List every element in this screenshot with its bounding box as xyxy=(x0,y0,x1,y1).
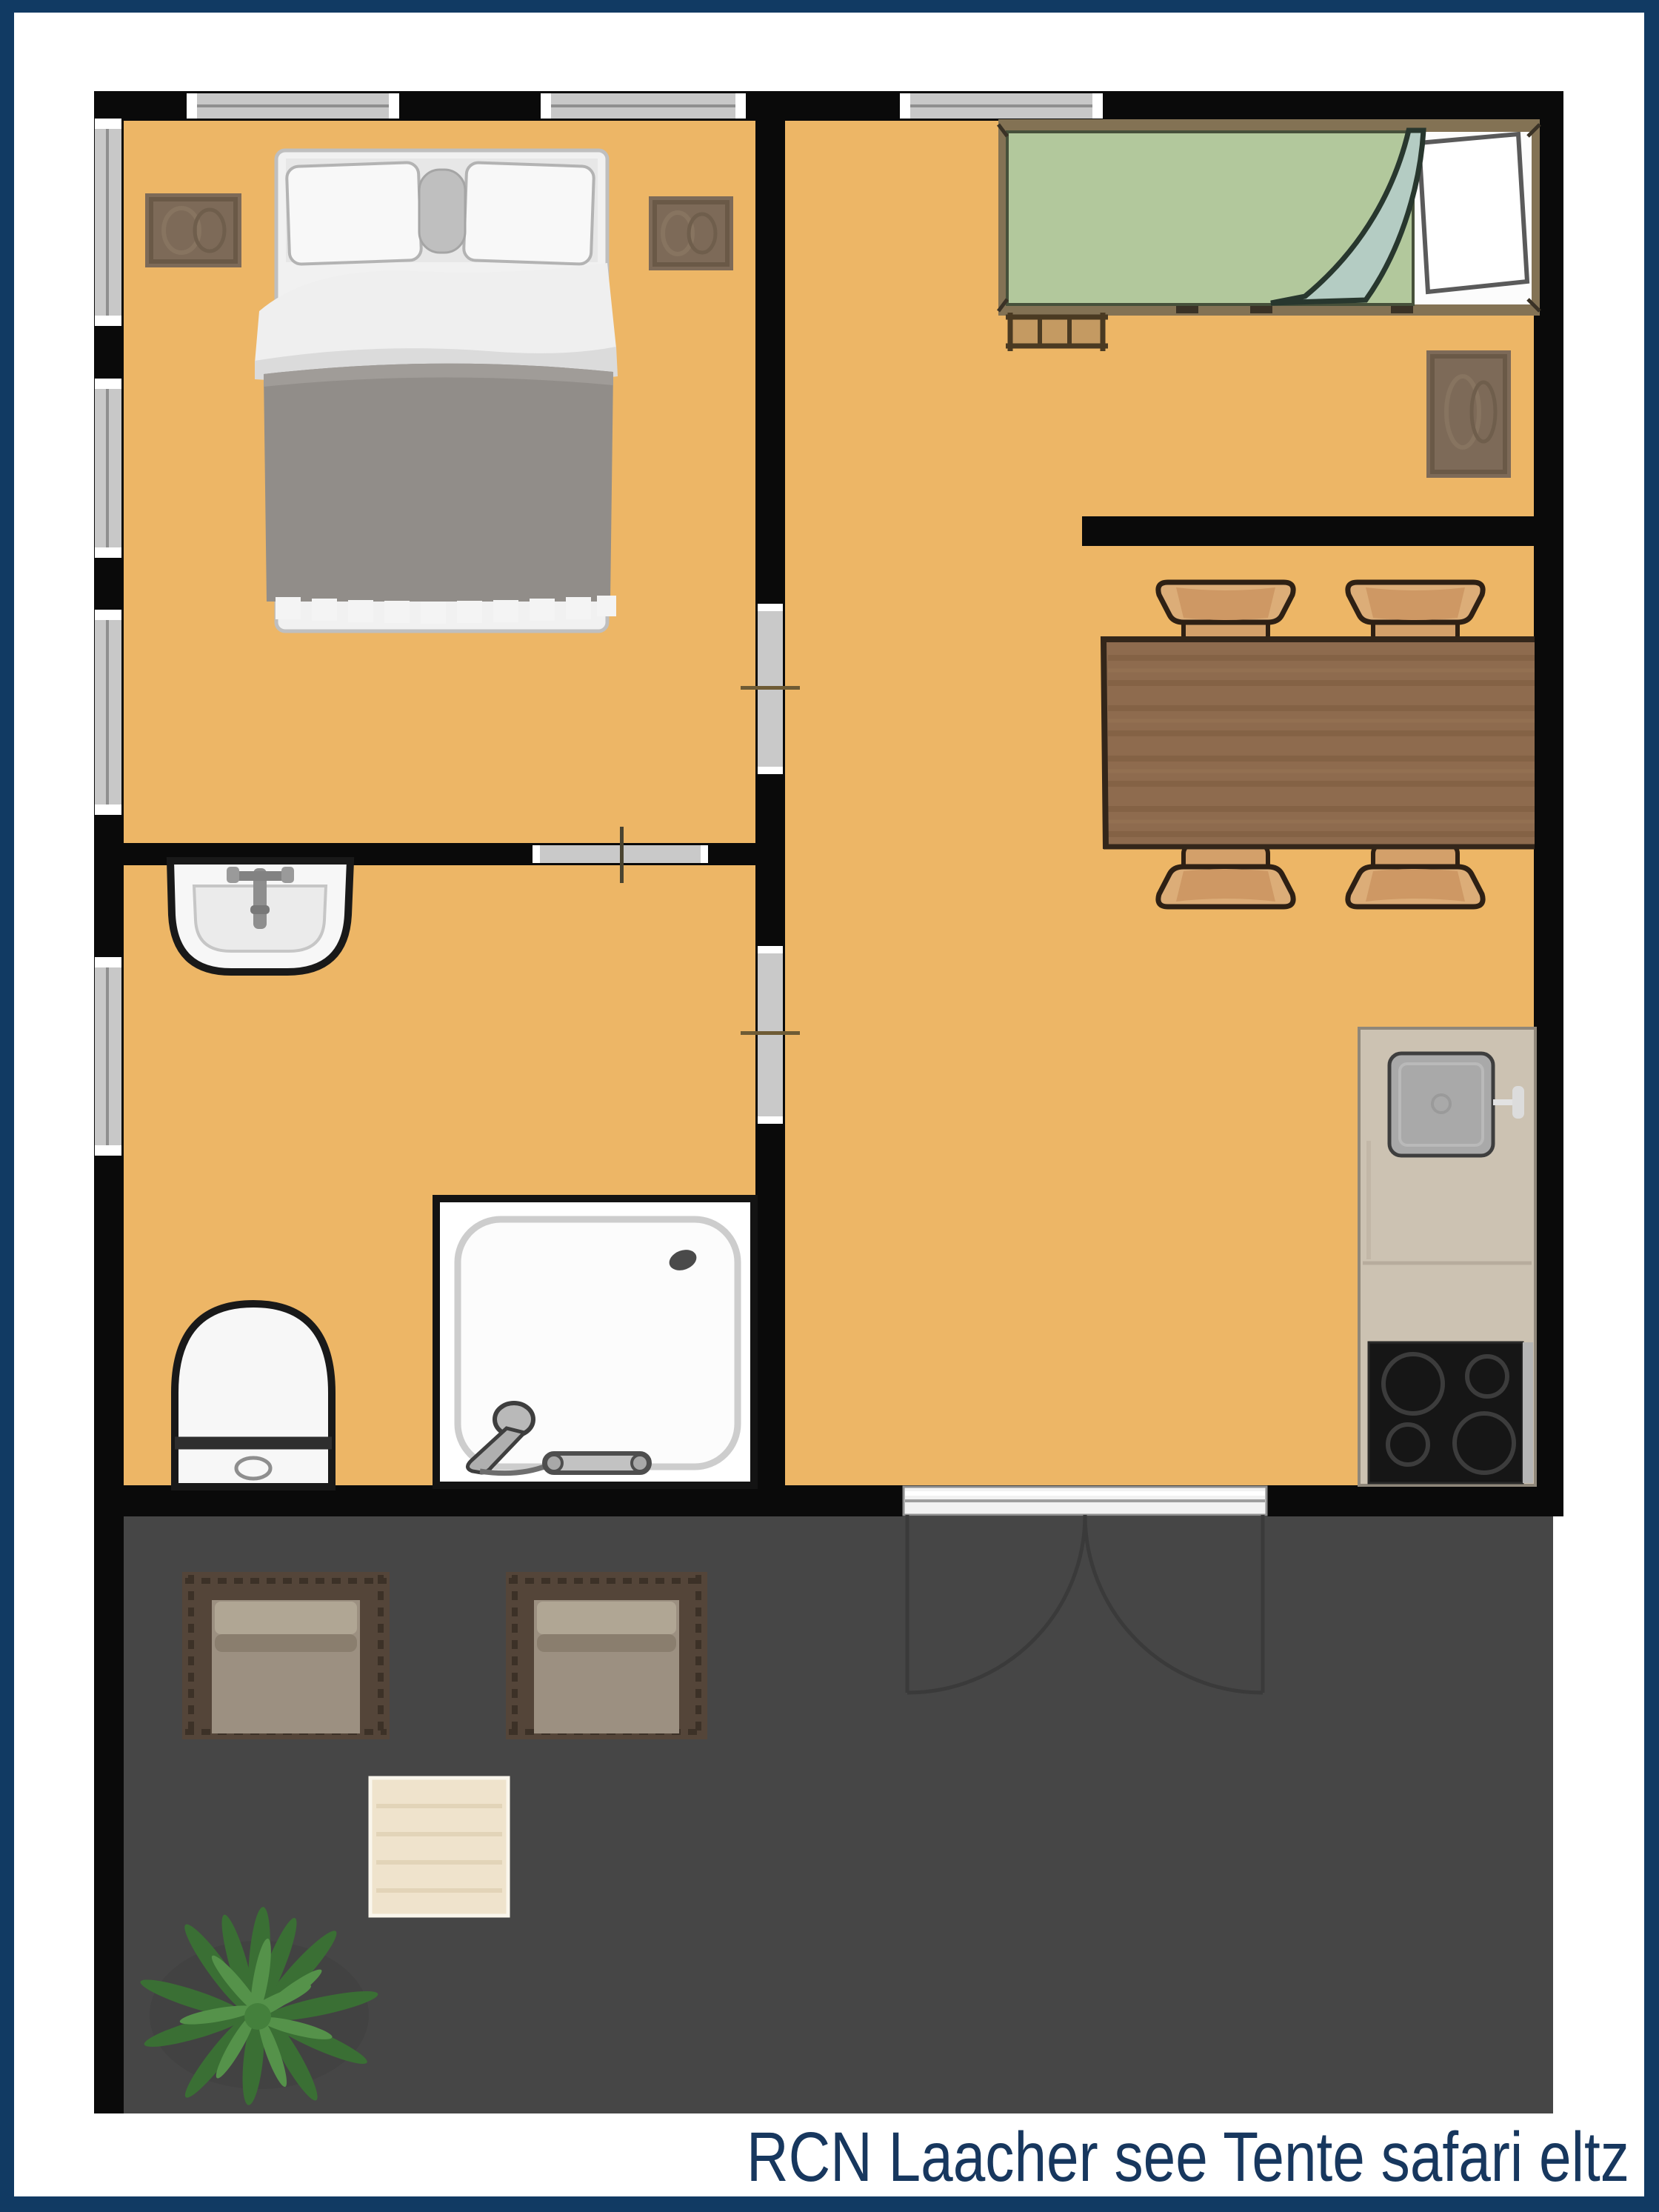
svg-text:RCN Laacher see Tente safari e: RCN Laacher see Tente safari eltz xyxy=(747,2118,1629,2196)
